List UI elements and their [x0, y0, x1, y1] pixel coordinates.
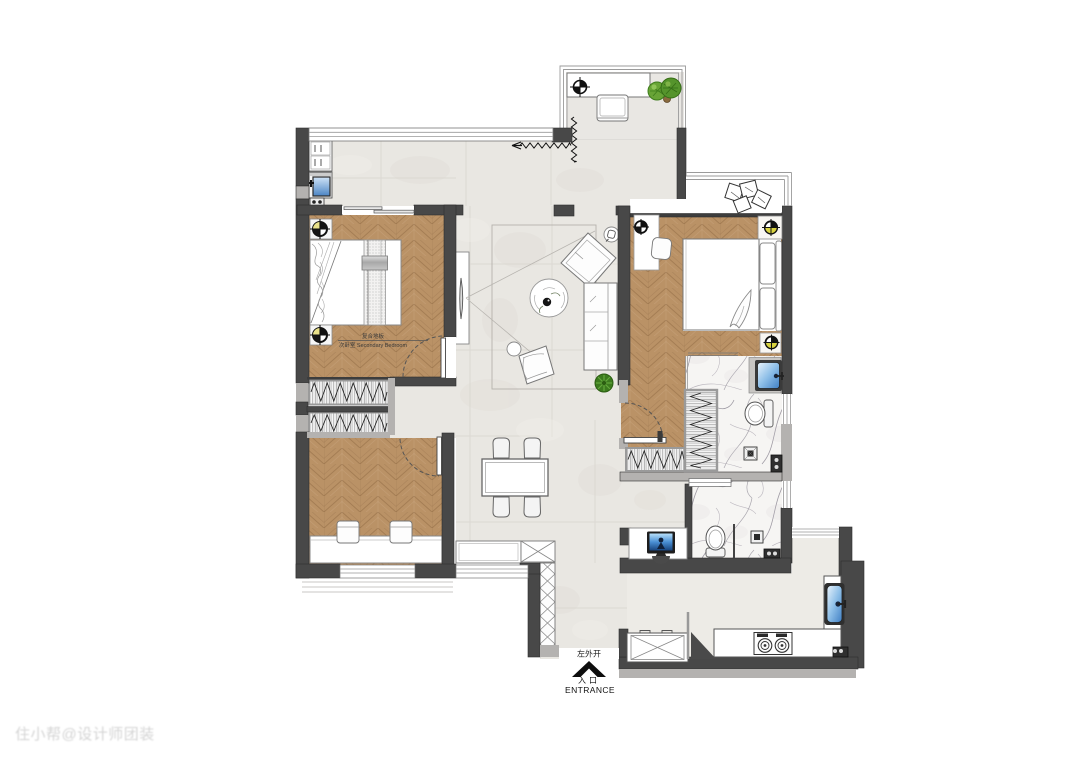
svg-text:复合地板: 复合地板 — [362, 332, 385, 340]
svg-text:左外开: 左外开 — [577, 649, 601, 659]
svg-text:次卧室 Secondary Bedroom: 次卧室 Secondary Bedroom — [339, 341, 408, 349]
svg-text:入口: 入口 — [578, 676, 600, 685]
svg-text:ENTRANCE: ENTRANCE — [565, 685, 615, 695]
